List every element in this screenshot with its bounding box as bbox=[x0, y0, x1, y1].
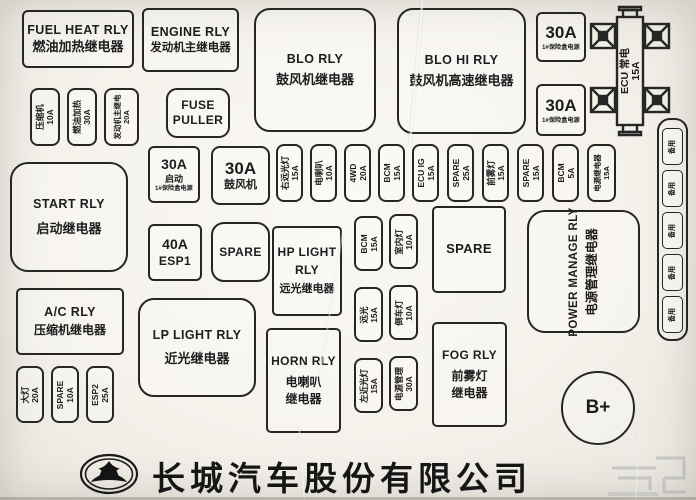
fuse-amp: 30A bbox=[82, 100, 92, 134]
relay-hp-light-en1: HP LIGHT bbox=[278, 245, 337, 260]
fuse-reserve-5: 备用 bbox=[662, 296, 683, 333]
relay-lp-light-zh: 近光继电器 bbox=[164, 351, 229, 367]
fuse-reserve-3: 备用 bbox=[662, 212, 683, 249]
relay-hp-light-en2: RLY bbox=[295, 263, 319, 278]
fuse-interior-light: 室内灯10A bbox=[389, 214, 418, 269]
relay-ac-en: A/C RLY bbox=[44, 305, 96, 321]
relay-blo-hi-zh: 鼓风机高速继电器 bbox=[409, 73, 513, 89]
fuse-name: 启动 bbox=[165, 174, 183, 185]
fuse-reserve-4: 备用 bbox=[662, 254, 683, 291]
fuse-label: 室内灯 bbox=[393, 229, 403, 255]
fuse-label: 左近光灯 bbox=[358, 368, 368, 402]
fuse-label: 压缩机 bbox=[35, 104, 45, 130]
fuse-bcm-15a-center: BCM15A bbox=[354, 216, 383, 271]
spare-slot-small: SPARE bbox=[211, 222, 270, 282]
fuse-bcm-15a: BCM15A bbox=[378, 144, 405, 202]
fuse-30a-start: 30A 启动 1#保险盒电源 bbox=[148, 146, 200, 203]
fuse-amp: 15A bbox=[392, 163, 402, 182]
fuse-reserve-2: 备用 bbox=[662, 170, 683, 207]
fuse-label: 电源继电器 bbox=[593, 154, 602, 192]
fuse-label: 备用 bbox=[668, 308, 676, 322]
fuse-amp: 30A bbox=[545, 95, 576, 116]
battery-label: B+ bbox=[586, 396, 611, 420]
fuse-amp: 30A bbox=[404, 366, 414, 400]
fuse-headlamp-20a: 大灯20A bbox=[16, 366, 44, 423]
fuse-label: 备用 bbox=[668, 224, 676, 238]
relay-horn-zh1: 电喇叭 bbox=[285, 375, 321, 390]
fuse-label: ESP2 bbox=[90, 384, 100, 406]
fuse-right-high-beam: 右远光灯15A bbox=[276, 144, 303, 202]
fuse-puller-l2: PULLER bbox=[173, 113, 223, 128]
relay-hp-light-zh: 远光继电器 bbox=[280, 283, 335, 297]
fuse-amp: 40A bbox=[162, 236, 188, 254]
reserve-fuse-column: 备用 备用 备用 备用 备用 bbox=[657, 118, 688, 341]
fuse-amp: 20A bbox=[122, 95, 131, 140]
relay-start-zh: 启动继电器 bbox=[36, 221, 101, 237]
relay-lp-light-en: LP LIGHT RLY bbox=[153, 328, 242, 344]
fuse-spare-10a: SPARE10A bbox=[51, 366, 79, 423]
fuse-amp: 20A bbox=[30, 386, 40, 403]
relay-fog: FOG RLY 前雾灯 继电器 bbox=[432, 322, 507, 427]
fuse-label: BCM bbox=[381, 163, 391, 182]
fuse-horn: 电喇叭10A bbox=[310, 144, 337, 202]
fuse-ecu-ig: ECU IG15A bbox=[412, 144, 439, 202]
fuse-label: 电源管理 bbox=[393, 366, 403, 400]
fuse-power-relay-15a: 电源继电器15A bbox=[587, 144, 616, 202]
fuse-label: 右远光灯 bbox=[279, 156, 289, 190]
fuse-amp: 15A bbox=[496, 160, 506, 186]
fuse-amp: 15A bbox=[369, 234, 379, 253]
fuse-power-manage-30a: 电源管理30A bbox=[389, 356, 418, 411]
fuse-label: 倒车灯 bbox=[393, 300, 403, 326]
relay-ac: A/C RLY 压缩机继电器 bbox=[16, 288, 124, 355]
relay-horn-en: HORN RLY bbox=[271, 354, 336, 369]
fuse-label: 前雾灯 bbox=[485, 160, 495, 186]
fuse-spare-15a: SPARE15A bbox=[517, 144, 544, 202]
fuse-puller: FUSE PULLER bbox=[166, 88, 230, 138]
fuse-left-low-beam: 左近光灯15A bbox=[354, 358, 383, 413]
watermark bbox=[606, 452, 694, 498]
fuse-amp: 25A bbox=[100, 384, 110, 406]
fuse-30a-blower: 30A 鼓风机 bbox=[211, 146, 270, 205]
relay-fuel-heat-zh: 燃油加热继电器 bbox=[32, 39, 123, 55]
fuse-amp: 15A bbox=[602, 154, 611, 192]
greatwall-logo-icon bbox=[78, 452, 140, 496]
fuse-label: SPARE bbox=[55, 380, 65, 409]
fuse-amp: 10A bbox=[404, 300, 414, 326]
relay-fog-en: FOG RLY bbox=[442, 348, 497, 363]
fuse-amp: 30A bbox=[225, 158, 256, 179]
fuse-label: 备用 bbox=[668, 182, 676, 196]
fuse-fuel-heating: 燃油加热 30A bbox=[67, 88, 97, 146]
relay-ac-zh: 压缩机继电器 bbox=[34, 323, 106, 338]
fuse-amp: 15A bbox=[369, 306, 379, 323]
fuse-amp: 25A bbox=[461, 159, 471, 188]
fuse-engine-main: 发动机主继电 20A bbox=[104, 88, 139, 146]
fuse-spare-25a: SPARE25A bbox=[447, 144, 474, 202]
fuse-sub: 1#保险盒电源 bbox=[542, 44, 580, 52]
relay-engine: ENGINE RLY 发动机主继电器 bbox=[142, 8, 239, 72]
fuse-esp2-25a: ESP225A bbox=[86, 366, 114, 423]
relay-blo-en: BLO RLY bbox=[287, 52, 344, 68]
fuse-30a-box-power-1: 30A 1#保险盒电源 bbox=[536, 12, 586, 62]
fuse-amp: 5A bbox=[566, 163, 576, 182]
relay-fog-zh1: 前雾灯 bbox=[451, 369, 487, 384]
relay-blo-hi-en: BLO HI RLY bbox=[425, 53, 499, 69]
fuse-reserve-1: 备用 bbox=[662, 128, 683, 165]
fuse-front-fog: 前雾灯15A bbox=[482, 144, 509, 202]
fuse-label: 4WD bbox=[347, 164, 357, 183]
ecu-fuse-amp: 15A bbox=[630, 61, 642, 81]
fuse-label: 备用 bbox=[668, 266, 676, 280]
fuse-name: ESP1 bbox=[159, 254, 191, 269]
fuse-amp: 30A bbox=[161, 156, 187, 174]
relay-fuel-heat-en: FUEL HEAT RLY bbox=[27, 23, 129, 39]
fuse-amp: 15A bbox=[531, 159, 541, 188]
fuse-amp: 30A bbox=[545, 22, 576, 43]
battery-terminal: B+ bbox=[561, 371, 635, 445]
company-name: 长城汽车股份有限公司 bbox=[152, 452, 532, 500]
fuse-label: 电喇叭 bbox=[313, 160, 323, 186]
fuse-4wd: 4WD20A bbox=[344, 144, 371, 202]
fuse-40a-esp1: 40A ESP1 bbox=[148, 224, 202, 281]
relay-blo-hi: BLO HI RLY 鼓风机高速继电器 bbox=[397, 8, 526, 134]
relay-power-manage-en: POWER MANAGE RLY bbox=[568, 207, 582, 336]
fuse-sub: 1#保险盒电源 bbox=[155, 185, 193, 193]
relay-fuel-heat: FUEL HEAT RLY 燃油加热继电器 bbox=[22, 10, 134, 68]
relay-blo-zh: 鼓风机继电器 bbox=[276, 72, 354, 88]
fuse-amp: 15A bbox=[290, 156, 300, 190]
fuse-name: 鼓风机 bbox=[224, 179, 257, 193]
relay-fog-zh2: 继电器 bbox=[451, 386, 487, 401]
spare-label: SPARE bbox=[219, 245, 261, 260]
fuse-ecu-main: ECU 常电 15A bbox=[588, 4, 672, 138]
fuse-amp: 10A bbox=[65, 380, 75, 409]
fuse-label: 远光 bbox=[358, 306, 368, 323]
fuse-label: BCM bbox=[358, 234, 368, 253]
fuse-label: 发动机主继电 bbox=[113, 95, 122, 140]
fuse-label: 大灯 bbox=[20, 386, 30, 403]
ecu-fuse-graphic: ECU 常电 15A bbox=[588, 4, 672, 138]
fuse-amp: 10A bbox=[404, 229, 414, 255]
fuse-amp: 15A bbox=[369, 368, 379, 402]
fuse-high-beam: 远光15A bbox=[354, 287, 383, 342]
fuse-bcm-5a: BCM5A bbox=[552, 144, 579, 202]
fuse-sub: 1#保险盒电源 bbox=[542, 117, 580, 125]
relay-start: START RLY 启动继电器 bbox=[10, 162, 128, 272]
fuse-amp: 10A bbox=[45, 104, 55, 130]
fuse-reverse-light: 倒车灯10A bbox=[389, 285, 418, 340]
relay-hp-light: HP LIGHT RLY 远光继电器 bbox=[272, 226, 342, 316]
relay-horn: HORN RLY 电喇叭 继电器 bbox=[266, 328, 341, 433]
fuse-label: 燃油加热 bbox=[72, 100, 82, 134]
relay-power-manage-zh: 电源管理继电器 bbox=[584, 207, 599, 336]
fuse-label: SPARE bbox=[450, 159, 460, 188]
spare-slot-large: SPARE bbox=[432, 206, 506, 293]
fuse-30a-box-power-2: 30A 1#保险盒电源 bbox=[536, 84, 586, 136]
fuse-label: 备用 bbox=[668, 140, 676, 154]
fuse-box-diagram: FUEL HEAT RLY 燃油加热继电器 ENGINE RLY 发动机主继电器… bbox=[0, 0, 696, 500]
relay-start-en: START RLY bbox=[33, 197, 105, 213]
spare-label: SPARE bbox=[446, 241, 492, 257]
relay-engine-en: ENGINE RLY bbox=[151, 25, 230, 41]
relay-horn-zh2: 继电器 bbox=[285, 392, 321, 407]
fuse-amp: 15A bbox=[426, 158, 436, 187]
relay-power-manage: POWER MANAGE RLY 电源管理继电器 bbox=[527, 210, 640, 333]
relay-blo: BLO RLY 鼓风机继电器 bbox=[254, 8, 376, 132]
fuse-amp: 20A bbox=[358, 164, 368, 183]
fuse-label: SPARE bbox=[520, 159, 530, 188]
fuse-compressor: 压缩机 10A bbox=[30, 88, 60, 146]
fuse-label: BCM bbox=[555, 163, 565, 182]
fuse-amp: 10A bbox=[324, 160, 334, 186]
relay-lp-light: LP LIGHT RLY 近光继电器 bbox=[138, 298, 256, 397]
fuse-puller-l1: FUSE bbox=[181, 98, 215, 113]
fuse-label: ECU IG bbox=[415, 158, 425, 187]
relay-engine-zh: 发动机主继电器 bbox=[150, 41, 231, 55]
